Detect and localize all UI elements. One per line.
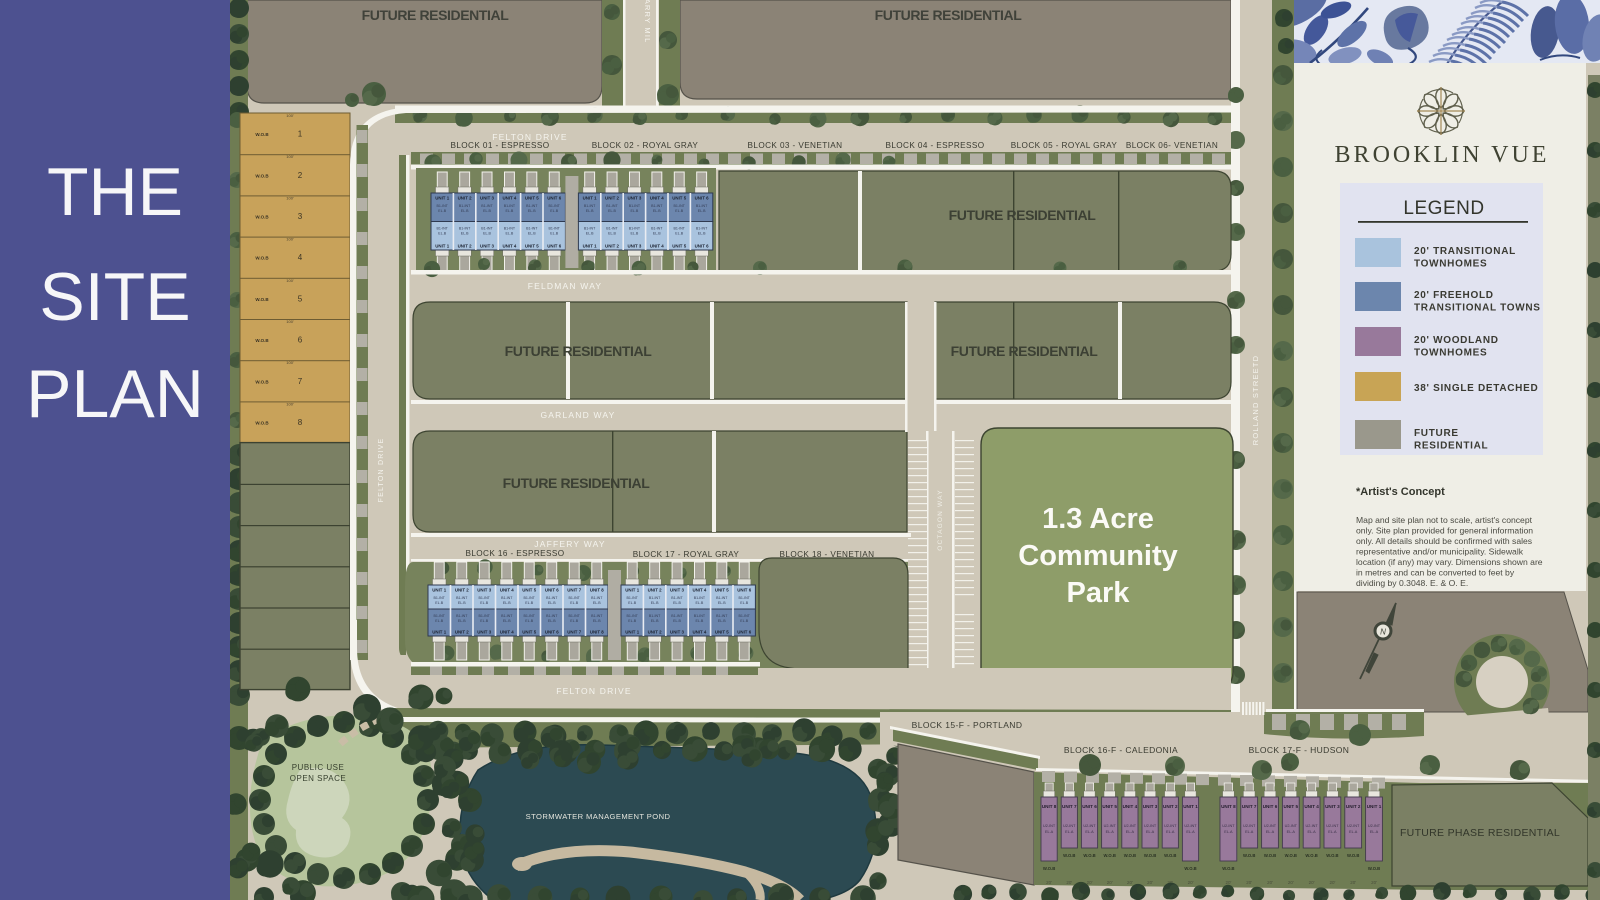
svg-text:UNIT 5: UNIT 5 <box>715 630 729 635</box>
svg-text:Park: Park <box>1067 577 1131 609</box>
svg-text:OPEN SPACE: OPEN SPACE <box>290 774 346 783</box>
svg-text:EL.B: EL.B <box>740 619 748 623</box>
svg-text:UNIT 5: UNIT 5 <box>525 244 539 249</box>
svg-text:TOWNHOMES: TOWNHOMES <box>1414 259 1487 270</box>
svg-text:UNIT 7: UNIT 7 <box>567 630 581 635</box>
svg-text:UNIT 4: UNIT 4 <box>502 196 516 201</box>
svg-text:BLOCK 16-F - CALEDONIA: BLOCK 16-F - CALEDONIA <box>1064 745 1178 755</box>
svg-text:B1-INT: B1-INT <box>584 204 596 208</box>
svg-text:B1-INT: B1-INT <box>501 614 513 618</box>
svg-text:TRANSITIONAL TOWNS: TRANSITIONAL TOWNS <box>1414 303 1541 314</box>
svg-text:UNIT 4: UNIT 4 <box>500 630 514 635</box>
svg-text:100': 100' <box>286 319 294 324</box>
svg-text:UNIT 5: UNIT 5 <box>522 630 536 635</box>
svg-text:THE: THE <box>47 154 183 230</box>
svg-text:UNIT 4: UNIT 4 <box>650 244 664 249</box>
svg-text:EL.A: EL.A <box>1307 830 1316 834</box>
svg-text:U2-INT: U2-INT <box>1164 824 1177 828</box>
svg-text:EL.B: EL.B <box>631 209 639 213</box>
svg-text:B1-INT: B1-INT <box>524 596 536 600</box>
svg-text:U2-INT: U2-INT <box>1184 824 1197 828</box>
svg-text:W.O.B: W.O.B <box>1184 866 1196 871</box>
svg-text:EL.B: EL.B <box>525 619 533 623</box>
svg-text:only. Site plan provided for g: only. Site plan provided for general inf… <box>1356 526 1533 536</box>
svg-text:EL.B: EL.B <box>653 232 661 236</box>
svg-text:UNIT 3: UNIT 3 <box>1143 804 1158 809</box>
svg-text:U2-INT: U2-INT <box>1243 824 1256 828</box>
svg-text:20': 20' <box>1225 880 1231 885</box>
svg-text:EL.B: EL.B <box>458 619 466 623</box>
svg-text:U2-INT: U2-INT <box>1264 824 1277 828</box>
svg-text:BLOCK 06- VENETIAN: BLOCK 06- VENETIAN <box>1126 141 1218 150</box>
svg-text:UNIT 2: UNIT 2 <box>1346 804 1361 809</box>
svg-text:B1-INT: B1-INT <box>481 227 493 231</box>
svg-text:B1-INT: B1-INT <box>437 227 449 231</box>
svg-text:UNIT 8: UNIT 8 <box>1042 804 1057 809</box>
svg-text:UNIT 3: UNIT 3 <box>670 588 684 593</box>
svg-text:100': 100' <box>286 237 294 242</box>
svg-text:BLOCK 01 - ESPRESSO: BLOCK 01 - ESPRESSO <box>450 141 549 150</box>
svg-text:EL.B: EL.B <box>675 232 683 236</box>
svg-text:B1-INT: B1-INT <box>546 614 558 618</box>
svg-text:BLOCK 02 - ROYAL GRAY: BLOCK 02 - ROYAL GRAY <box>592 141 699 150</box>
svg-text:W.O.B: W.O.B <box>255 132 269 137</box>
svg-text:UNIT 7: UNIT 7 <box>1062 804 1077 809</box>
svg-text:B1-INT: B1-INT <box>606 204 618 208</box>
svg-text:B1-INT: B1-INT <box>591 596 603 600</box>
svg-text:EL.B: EL.B <box>525 601 533 605</box>
svg-text:W.O.B: W.O.B <box>1368 866 1380 871</box>
svg-text:U2-INT: U2-INT <box>1347 824 1360 828</box>
svg-text:20': 20' <box>1066 880 1072 885</box>
svg-text:EL.B: EL.B <box>718 601 726 605</box>
svg-text:UNIT 4: UNIT 4 <box>502 244 516 249</box>
svg-text:FUTURE PHASE RESIDENTIAL: FUTURE PHASE RESIDENTIAL <box>1400 827 1560 839</box>
svg-text:UNIT 3: UNIT 3 <box>477 630 491 635</box>
svg-text:UNIT 2: UNIT 2 <box>455 630 469 635</box>
svg-text:EL.B: EL.B <box>651 619 659 623</box>
svg-text:FUTURE RESIDENTIAL: FUTURE RESIDENTIAL <box>503 475 651 491</box>
svg-text:EL.B: EL.B <box>586 209 594 213</box>
svg-text:100': 100' <box>286 278 294 283</box>
svg-text:B1-INT: B1-INT <box>526 227 538 231</box>
svg-text:B1-INT: B1-INT <box>716 596 728 600</box>
svg-text:BLOCK 15-F - PORTLAND: BLOCK 15-F - PORTLAND <box>912 720 1023 730</box>
svg-text:B1-INT: B1-INT <box>501 596 513 600</box>
svg-text:EL.A: EL.A <box>1166 830 1175 834</box>
svg-text:B1-INT: B1-INT <box>674 227 686 231</box>
svg-text:FELTON DRIVE: FELTON DRIVE <box>378 438 385 503</box>
svg-text:EL.A: EL.A <box>1045 830 1054 834</box>
svg-text:20' WOODLAND: 20' WOODLAND <box>1414 335 1499 346</box>
svg-text:20': 20' <box>1107 880 1113 885</box>
svg-text:PUBLIC USE: PUBLIC USE <box>292 763 345 772</box>
svg-text:20': 20' <box>1329 880 1335 885</box>
svg-text:100': 100' <box>286 195 294 200</box>
svg-text:B1-INT: B1-INT <box>504 227 516 231</box>
svg-text:UNIT 8: UNIT 8 <box>1221 804 1236 809</box>
svg-text:B1-INT: B1-INT <box>549 227 561 231</box>
svg-text:100': 100' <box>286 154 294 159</box>
svg-text:UNIT 6: UNIT 6 <box>737 588 751 593</box>
svg-text:UNIT 4: UNIT 4 <box>650 196 664 201</box>
svg-text:EL.B: EL.B <box>528 209 536 213</box>
svg-text:W.O.B: W.O.B <box>1285 853 1297 858</box>
svg-text:EL.B: EL.B <box>528 232 536 236</box>
svg-text:UNIT 2: UNIT 2 <box>458 244 472 249</box>
svg-text:EL.A: EL.A <box>1287 830 1296 834</box>
svg-text:B1-INT: B1-INT <box>696 227 708 231</box>
svg-text:UNIT 6: UNIT 6 <box>547 244 561 249</box>
svg-text:UNIT 1: UNIT 1 <box>625 630 639 635</box>
svg-text:FELTON DRIVE: FELTON DRIVE <box>556 686 632 696</box>
svg-text:20': 20' <box>1246 880 1252 885</box>
svg-text:B1-INT: B1-INT <box>456 614 468 618</box>
svg-text:OCTAGON WAY: OCTAGON WAY <box>937 489 944 550</box>
svg-text:20' TRANSITIONAL: 20' TRANSITIONAL <box>1414 246 1516 257</box>
svg-text:B1-INT: B1-INT <box>434 596 446 600</box>
svg-text:2: 2 <box>298 171 303 180</box>
svg-text:STORMWATER MANAGEMENT POND: STORMWATER MANAGEMENT POND <box>526 812 671 821</box>
svg-text:UNIT 3: UNIT 3 <box>627 244 641 249</box>
svg-text:20': 20' <box>1309 880 1315 885</box>
svg-text:EL.A: EL.A <box>1266 830 1275 834</box>
svg-text:dividing by 0.3048. E. & O. E.: dividing by 0.3048. E. & O. E. <box>1356 578 1468 588</box>
svg-text:EL.B: EL.B <box>570 619 578 623</box>
svg-text:EL.B: EL.B <box>506 209 514 213</box>
svg-text:UNIT 8: UNIT 8 <box>590 588 604 593</box>
svg-text:B1-INT: B1-INT <box>629 204 641 208</box>
svg-text:B1-INT: B1-INT <box>629 227 641 231</box>
svg-text:20': 20' <box>1127 880 1133 885</box>
svg-text:UNIT 1: UNIT 1 <box>435 196 449 201</box>
svg-text:UNIT 3: UNIT 3 <box>480 244 494 249</box>
svg-text:UNIT 5: UNIT 5 <box>522 588 536 593</box>
svg-text:B1-INT: B1-INT <box>569 614 581 618</box>
svg-text:UNIT 6: UNIT 6 <box>545 588 559 593</box>
svg-text:B1-INT: B1-INT <box>524 614 536 618</box>
svg-text:EL.B: EL.B <box>593 601 601 605</box>
svg-text:5: 5 <box>298 294 303 303</box>
svg-text:B1-INT: B1-INT <box>591 614 603 618</box>
svg-text:EL.B: EL.B <box>628 601 636 605</box>
svg-text:UNIT 5: UNIT 5 <box>525 196 539 201</box>
svg-text:EL.B: EL.B <box>550 232 558 236</box>
svg-text:B1-INT: B1-INT <box>649 614 661 618</box>
svg-text:20': 20' <box>1267 880 1273 885</box>
svg-text:EL.A: EL.A <box>1245 830 1254 834</box>
svg-text:UNIT 1: UNIT 1 <box>583 244 597 249</box>
svg-text:BLOCK 17-F - HUDSON: BLOCK 17-F - HUDSON <box>1249 745 1350 755</box>
svg-text:TOWNHOMES: TOWNHOMES <box>1414 348 1487 359</box>
svg-text:UNIT 5: UNIT 5 <box>715 588 729 593</box>
svg-text:20': 20' <box>1288 880 1294 885</box>
svg-text:*Artist's Concept: *Artist's Concept <box>1356 486 1445 498</box>
svg-text:20': 20' <box>1046 880 1052 885</box>
svg-text:20' FREEHOLD: 20' FREEHOLD <box>1414 290 1494 301</box>
svg-text:W.O.B: W.O.B <box>1326 853 1338 858</box>
svg-text:EL.B: EL.B <box>480 601 488 605</box>
svg-text:EL.B: EL.B <box>593 619 601 623</box>
svg-text:UNIT 6: UNIT 6 <box>695 196 709 201</box>
svg-text:EL.B: EL.B <box>461 232 469 236</box>
svg-text:UNIT 5: UNIT 5 <box>1284 804 1299 809</box>
svg-text:20': 20' <box>1087 880 1093 885</box>
svg-text:B1-INT: B1-INT <box>584 227 596 231</box>
svg-text:FELDMAN WAY: FELDMAN WAY <box>528 281 603 291</box>
svg-text:U2-INT: U2-INT <box>1144 824 1157 828</box>
svg-text:EL.B: EL.B <box>435 619 443 623</box>
svg-text:FUTURE RESIDENTIAL: FUTURE RESIDENTIAL <box>949 207 1097 223</box>
svg-text:B1-INT: B1-INT <box>459 227 471 231</box>
svg-text:EL.B: EL.B <box>438 209 446 213</box>
svg-text:GARLAND WAY: GARLAND WAY <box>540 410 615 420</box>
svg-text:EL.B: EL.B <box>586 232 594 236</box>
svg-text:B1-INT: B1-INT <box>694 596 706 600</box>
svg-text:EL.B: EL.B <box>608 209 616 213</box>
svg-text:RESIDENTIAL: RESIDENTIAL <box>1414 441 1488 452</box>
svg-text:UNIT 2: UNIT 2 <box>648 630 662 635</box>
svg-text:W.O.B: W.O.B <box>1043 866 1055 871</box>
svg-text:3: 3 <box>298 212 303 221</box>
svg-text:BLOCK 16 - ESPRESSO: BLOCK 16 - ESPRESSO <box>465 549 564 558</box>
svg-text:LEGEND: LEGEND <box>1403 198 1484 219</box>
svg-text:UNIT 4: UNIT 4 <box>692 588 706 593</box>
svg-text:20': 20' <box>1371 880 1377 885</box>
svg-text:B1-INT: B1-INT <box>651 227 663 231</box>
svg-text:B1-INT: B1-INT <box>434 614 446 618</box>
svg-text:B1-INT: B1-INT <box>671 596 683 600</box>
svg-text:EL.B: EL.B <box>696 601 704 605</box>
svg-text:BLOCK 03 - VENETIAN: BLOCK 03 - VENETIAN <box>748 141 843 150</box>
svg-text:UNIT 2: UNIT 2 <box>648 588 662 593</box>
svg-text:BROOKLIN VUE: BROOKLIN VUE <box>1335 142 1550 168</box>
svg-text:PLAN: PLAN <box>26 356 204 432</box>
svg-text:EL.B: EL.B <box>718 619 726 623</box>
svg-text:U2-INT: U2-INT <box>1063 824 1076 828</box>
svg-text:B1-INT: B1-INT <box>671 614 683 618</box>
svg-text:UNIT 4: UNIT 4 <box>500 588 514 593</box>
svg-text:EL.B: EL.B <box>698 209 706 213</box>
svg-text:W.O.B: W.O.B <box>1243 853 1255 858</box>
svg-text:6: 6 <box>298 336 303 345</box>
svg-text:7: 7 <box>298 377 303 386</box>
svg-text:EL.B: EL.B <box>548 601 556 605</box>
svg-text:Map and site plan not to scale: Map and site plan not to scale, artist's… <box>1356 515 1533 525</box>
svg-text:SITE: SITE <box>39 259 190 335</box>
svg-text:8: 8 <box>298 418 303 427</box>
svg-text:W.O.B: W.O.B <box>1063 853 1075 858</box>
svg-text:UNIT 1: UNIT 1 <box>1367 804 1382 809</box>
svg-text:EL.A: EL.A <box>1126 830 1135 834</box>
svg-text:B1-INT: B1-INT <box>674 204 686 208</box>
svg-text:EL.B: EL.B <box>698 232 706 236</box>
svg-text:BLOCK 17 - ROYAL GRAY: BLOCK 17 - ROYAL GRAY <box>633 550 740 559</box>
svg-text:B1-INT: B1-INT <box>651 204 663 208</box>
svg-text:B1-INT: B1-INT <box>694 614 706 618</box>
svg-text:W.O.B: W.O.B <box>1264 853 1276 858</box>
svg-text:B1-INT: B1-INT <box>456 596 468 600</box>
svg-text:EL.A: EL.A <box>1224 830 1233 834</box>
svg-text:EL.A: EL.A <box>1146 830 1155 834</box>
svg-text:UNIT 8: UNIT 8 <box>590 630 604 635</box>
svg-text:UNIT 6: UNIT 6 <box>547 196 561 201</box>
svg-text:U2-INT: U2-INT <box>1285 824 1298 828</box>
svg-text:EL.B: EL.B <box>675 209 683 213</box>
svg-text:EL.A: EL.A <box>1065 830 1074 834</box>
svg-text:EL.B: EL.B <box>548 619 556 623</box>
svg-text:JAFFERY WAY: JAFFERY WAY <box>534 539 605 549</box>
svg-text:B1-INT: B1-INT <box>627 614 639 618</box>
svg-text:W.O.B: W.O.B <box>1164 853 1176 858</box>
svg-text:EL.B: EL.B <box>461 209 469 213</box>
svg-text:U2-INT: U2-INT <box>1083 824 1096 828</box>
svg-text:BARRY MIL: BARRY MIL <box>643 0 652 43</box>
svg-text:U2-INT: U2-INT <box>1368 824 1381 828</box>
svg-text:U2-INT: U2-INT <box>1104 824 1117 828</box>
svg-text:EL.B: EL.B <box>673 601 681 605</box>
svg-text:B1-INT: B1-INT <box>696 204 708 208</box>
svg-text:W.O.B: W.O.B <box>255 338 269 343</box>
svg-text:UNIT 4: UNIT 4 <box>692 630 706 635</box>
svg-text:W.O.B: W.O.B <box>1305 853 1317 858</box>
svg-text:UNIT 4: UNIT 4 <box>1304 804 1319 809</box>
svg-text:B1-INT: B1-INT <box>549 204 561 208</box>
svg-text:U2-INT: U2-INT <box>1326 824 1339 828</box>
svg-text:EL.A: EL.A <box>1349 830 1358 834</box>
svg-text:UNIT 2: UNIT 2 <box>605 196 619 201</box>
svg-text:UNIT 3: UNIT 3 <box>1325 804 1340 809</box>
svg-text:UNIT 6: UNIT 6 <box>737 630 751 635</box>
svg-text:UNIT 1: UNIT 1 <box>583 196 597 201</box>
svg-text:U2-INT: U2-INT <box>1222 824 1235 828</box>
svg-text:FUTURE RESIDENTIAL: FUTURE RESIDENTIAL <box>505 343 653 359</box>
svg-text:FUTURE RESIDENTIAL: FUTURE RESIDENTIAL <box>951 343 1099 359</box>
svg-text:20': 20' <box>1188 880 1194 885</box>
svg-text:EL.B: EL.B <box>480 619 488 623</box>
svg-text:UNIT 5: UNIT 5 <box>1102 804 1117 809</box>
svg-text:UNIT 1: UNIT 1 <box>432 630 446 635</box>
svg-text:N: N <box>1380 628 1386 637</box>
svg-text:in metres and can be converted: in metres and can be converted to feet b… <box>1356 568 1515 578</box>
svg-text:W.O.B: W.O.B <box>1104 853 1116 858</box>
svg-text:UNIT 3: UNIT 3 <box>670 630 684 635</box>
svg-text:U2-INT: U2-INT <box>1043 824 1056 828</box>
svg-text:EL.B: EL.B <box>458 601 466 605</box>
svg-text:UNIT 4: UNIT 4 <box>1123 804 1138 809</box>
svg-text:BLOCK 05 - ROYAL GRAY: BLOCK 05 - ROYAL GRAY <box>1011 141 1118 150</box>
svg-text:only. All details should be co: only. All details should be confirmed wi… <box>1356 536 1532 546</box>
svg-text:FUTURE RESIDENTIAL: FUTURE RESIDENTIAL <box>362 7 510 23</box>
svg-text:1.3 Acre: 1.3 Acre <box>1042 503 1154 535</box>
svg-text:W.O.B: W.O.B <box>1347 853 1359 858</box>
svg-text:EL.B: EL.B <box>673 619 681 623</box>
svg-text:EL.B: EL.B <box>483 209 491 213</box>
svg-text:UNIT 5: UNIT 5 <box>672 196 686 201</box>
svg-text:EL.B: EL.B <box>483 232 491 236</box>
svg-text:4: 4 <box>298 253 303 262</box>
svg-text:UNIT 3: UNIT 3 <box>477 588 491 593</box>
svg-text:Community: Community <box>1018 540 1178 572</box>
svg-text:W.O.B: W.O.B <box>1083 853 1095 858</box>
svg-text:UNIT 2: UNIT 2 <box>458 196 472 201</box>
svg-text:100': 100' <box>286 360 294 365</box>
svg-text:UNIT 3: UNIT 3 <box>627 196 641 201</box>
svg-text:100': 100' <box>286 113 294 118</box>
svg-text:B1-INT: B1-INT <box>481 204 493 208</box>
svg-text:UNIT 1: UNIT 1 <box>625 588 639 593</box>
svg-text:UNIT 1: UNIT 1 <box>432 588 446 593</box>
svg-text:B1-INT: B1-INT <box>716 614 728 618</box>
svg-text:EL.B: EL.B <box>608 232 616 236</box>
svg-text:B1-INT: B1-INT <box>739 614 751 618</box>
svg-text:EL.B: EL.B <box>506 232 514 236</box>
svg-text:B1-INT: B1-INT <box>606 227 618 231</box>
svg-text:UNIT 6: UNIT 6 <box>695 244 709 249</box>
svg-text:B1-INT: B1-INT <box>649 596 661 600</box>
svg-text:EL.A: EL.A <box>1085 830 1094 834</box>
svg-text:B1-INT: B1-INT <box>437 204 449 208</box>
svg-text:UNIT 1: UNIT 1 <box>435 244 449 249</box>
svg-text:EL.B: EL.B <box>631 232 639 236</box>
svg-text:W.O.B: W.O.B <box>1144 853 1156 858</box>
svg-text:EL.B: EL.B <box>653 209 661 213</box>
svg-text:ROLLAND STREETD: ROLLAND STREETD <box>1251 355 1260 446</box>
svg-text:UNIT 5: UNIT 5 <box>672 244 686 249</box>
svg-text:W.O.B: W.O.B <box>255 215 269 220</box>
svg-text:B1-INT: B1-INT <box>546 596 558 600</box>
svg-text:EL.B: EL.B <box>550 209 558 213</box>
svg-text:W.O.B: W.O.B <box>255 173 269 178</box>
svg-text:UNIT 1: UNIT 1 <box>1183 804 1198 809</box>
svg-text:W.O.B: W.O.B <box>255 256 269 261</box>
svg-text:W.O.B: W.O.B <box>255 421 269 426</box>
svg-text:1: 1 <box>298 130 303 139</box>
svg-text:B1-INT: B1-INT <box>526 204 538 208</box>
svg-text:EL.A: EL.A <box>1106 830 1115 834</box>
svg-text:EL.B: EL.B <box>696 619 704 623</box>
svg-text:FUTURE: FUTURE <box>1414 428 1459 439</box>
svg-text:UNIT 6: UNIT 6 <box>1082 804 1097 809</box>
svg-text:B1-INT: B1-INT <box>459 204 471 208</box>
svg-text:EL.B: EL.B <box>651 601 659 605</box>
svg-text:W.O.B: W.O.B <box>1124 853 1136 858</box>
svg-text:38' SINGLE DETACHED: 38' SINGLE DETACHED <box>1414 383 1538 394</box>
svg-text:UNIT 2: UNIT 2 <box>605 244 619 249</box>
svg-text:UNIT 3: UNIT 3 <box>480 196 494 201</box>
svg-text:FUTURE RESIDENTIAL: FUTURE RESIDENTIAL <box>875 7 1023 23</box>
svg-text:EL.B: EL.B <box>628 619 636 623</box>
svg-text:W.O.B: W.O.B <box>1222 866 1234 871</box>
svg-text:B1-INT: B1-INT <box>504 204 516 208</box>
svg-text:EL.B: EL.B <box>503 619 511 623</box>
svg-text:100': 100' <box>286 401 294 406</box>
svg-text:UNIT 7: UNIT 7 <box>1242 804 1257 809</box>
svg-text:W.O.B: W.O.B <box>255 379 269 384</box>
svg-text:20': 20' <box>1147 880 1153 885</box>
svg-text:EL.A: EL.A <box>1370 830 1379 834</box>
svg-text:UNIT 6: UNIT 6 <box>545 630 559 635</box>
svg-text:UNIT 2: UNIT 2 <box>1163 804 1178 809</box>
svg-text:BLOCK 04 - ESPRESSO: BLOCK 04 - ESPRESSO <box>885 141 984 150</box>
svg-text:representative and/or municipa: representative and/or municipality. Side… <box>1356 547 1524 557</box>
svg-text:EL.B: EL.B <box>740 601 748 605</box>
svg-text:U2-INT: U2-INT <box>1305 824 1318 828</box>
svg-text:B1-INT: B1-INT <box>627 596 639 600</box>
svg-text:EL.A: EL.A <box>1328 830 1337 834</box>
svg-text:location (if any) may vary. Di: location (if any) may vary. Dimensions s… <box>1356 557 1543 567</box>
svg-text:20': 20' <box>1350 880 1356 885</box>
